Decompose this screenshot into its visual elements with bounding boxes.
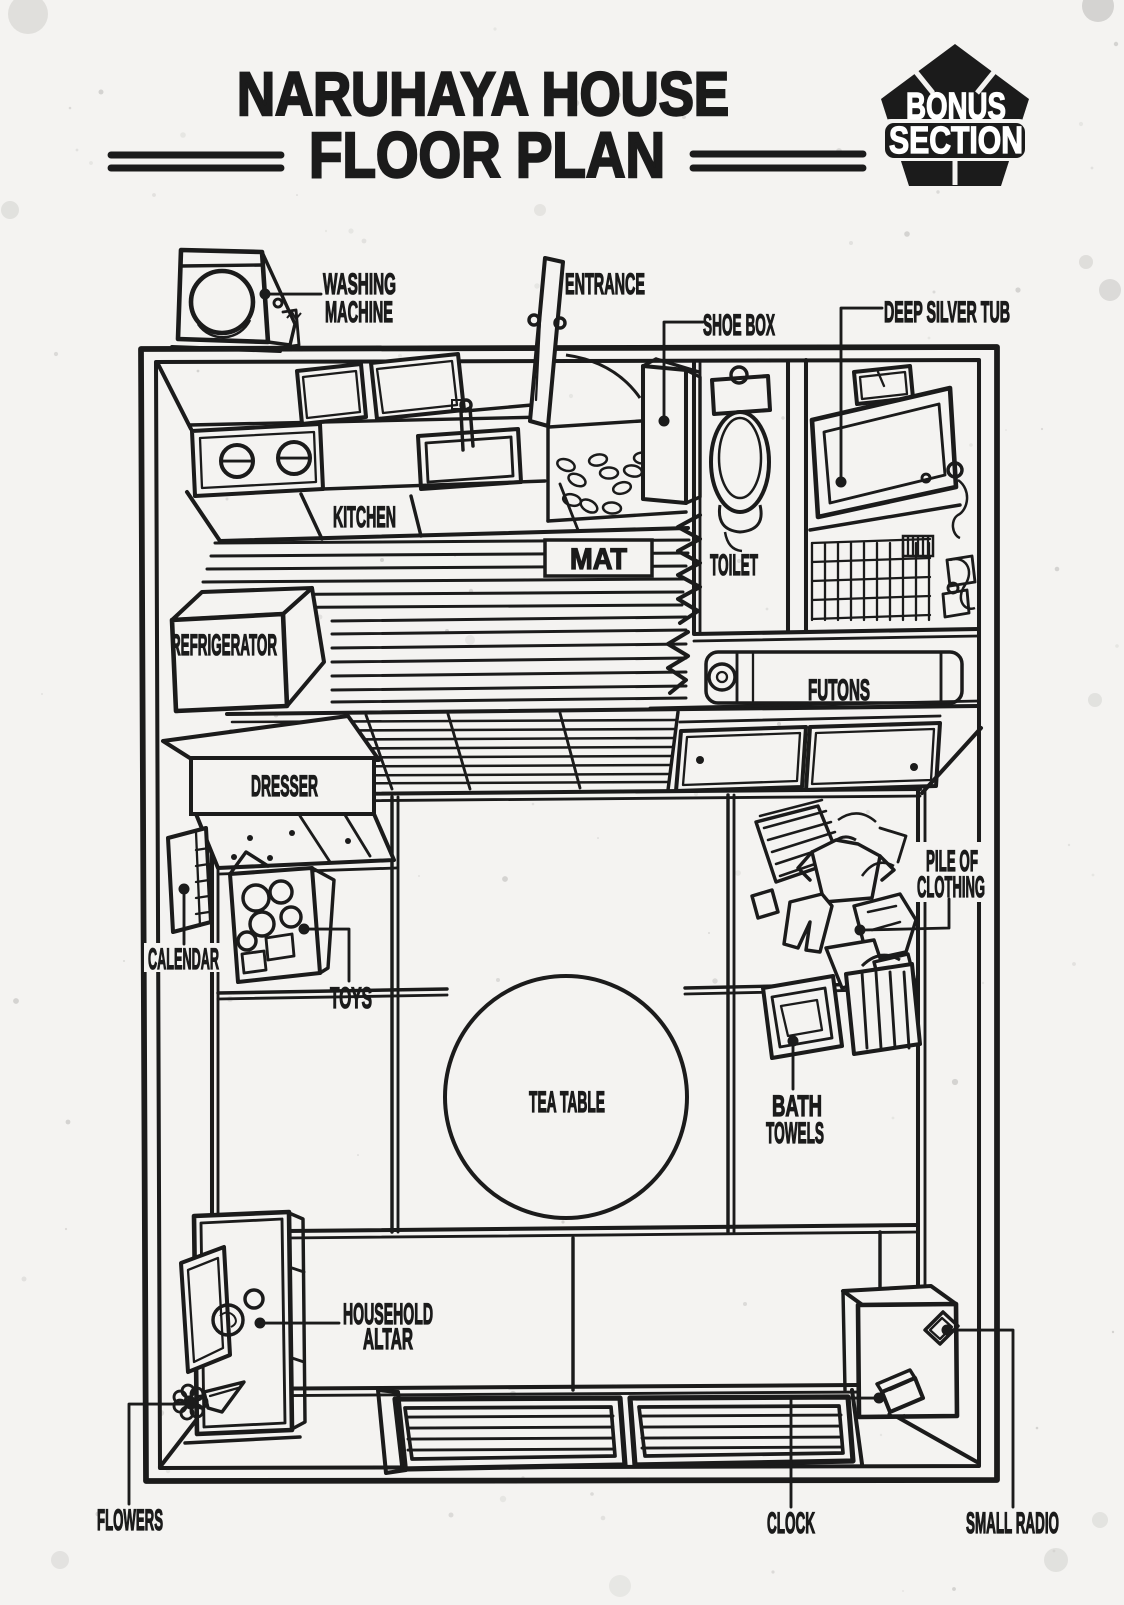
svg-text:ALTAR: ALTAR: [363, 1323, 413, 1356]
svg-text:FLOWERS: FLOWERS: [97, 1504, 163, 1537]
svg-text:TEA TABLE: TEA TABLE: [529, 1086, 605, 1119]
svg-text:TOILET: TOILET: [710, 549, 758, 582]
svg-text:FLOOR PLAN: FLOOR PLAN: [309, 119, 665, 191]
svg-text:DRESSER: DRESSER: [251, 770, 318, 803]
svg-text:CALENDAR: CALENDAR: [148, 943, 219, 976]
svg-text:SECTION: SECTION: [889, 120, 1023, 162]
svg-text:NARUHAYA HOUSE: NARUHAYA HOUSE: [237, 60, 729, 128]
svg-text:CLOTHING: CLOTHING: [917, 871, 985, 904]
svg-text:TOYS: TOYS: [330, 982, 372, 1015]
svg-text:CLOCK: CLOCK: [767, 1507, 815, 1540]
svg-text:SHOE BOX: SHOE BOX: [703, 309, 775, 342]
svg-text:DEEP SILVER TUB: DEEP SILVER TUB: [884, 296, 1010, 329]
svg-text:ENTRANCE: ENTRANCE: [565, 268, 645, 301]
svg-text:REFRIGERATOR: REFRIGERATOR: [171, 629, 277, 662]
svg-text:SMALL RADIO: SMALL RADIO: [966, 1507, 1059, 1540]
svg-text:KITCHEN: KITCHEN: [333, 501, 396, 534]
svg-text:MACHINE: MACHINE: [325, 296, 393, 329]
svg-text:FUTONS: FUTONS: [808, 674, 870, 707]
svg-text:TOWELS: TOWELS: [766, 1117, 824, 1150]
svg-text:MAT: MAT: [570, 543, 627, 576]
